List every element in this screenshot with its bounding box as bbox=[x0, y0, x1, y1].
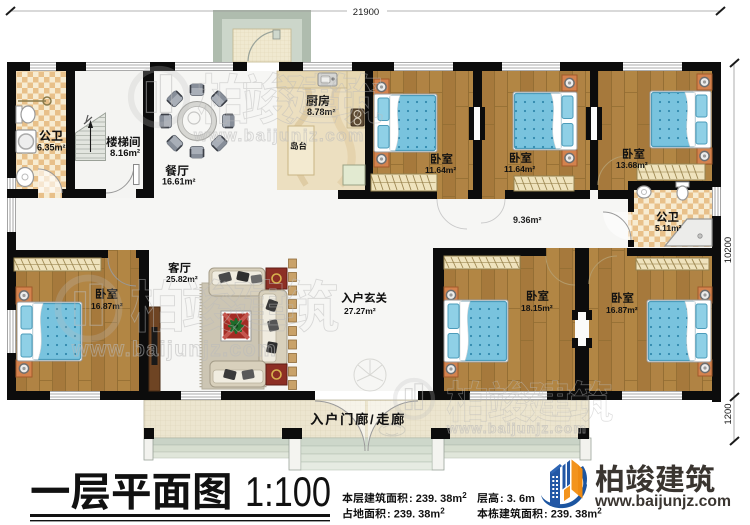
svg-text:: 239. 38m2: : 239. 38m2 bbox=[387, 507, 445, 521]
svg-text:11.64m²: 11.64m² bbox=[504, 164, 535, 174]
svg-text:16.61m²: 16.61m² bbox=[162, 177, 196, 187]
svg-text:: 239. 38m2: : 239. 38m2 bbox=[544, 507, 602, 521]
svg-text:8.16m²: 8.16m² bbox=[110, 148, 140, 159]
svg-text:21900: 21900 bbox=[353, 7, 379, 18]
svg-text:www.baijunjz.com: www.baijunjz.com bbox=[71, 338, 277, 361]
svg-text:: 239. 38m2: : 239. 38m2 bbox=[409, 491, 467, 505]
svg-text:16.87m²: 16.87m² bbox=[606, 305, 638, 315]
svg-text:www.baijunjz.com: www.baijunjz.com bbox=[193, 126, 365, 145]
svg-text:9.36m²: 9.36m² bbox=[513, 215, 542, 225]
svg-text:27.27m²: 27.27m² bbox=[344, 306, 376, 316]
svg-text:: 3. 6m: : 3. 6m bbox=[500, 493, 535, 505]
svg-text:11.64m²: 11.64m² bbox=[425, 165, 456, 175]
svg-text:/: / bbox=[370, 412, 374, 427]
svg-text:1:100: 1:100 bbox=[245, 468, 331, 515]
svg-text:5.11m²: 5.11m² bbox=[655, 223, 682, 233]
svg-text:www.baijunjz.com: www.baijunjz.com bbox=[446, 420, 587, 436]
svg-text:13.68m²: 13.68m² bbox=[616, 160, 648, 170]
svg-text:1200: 1200 bbox=[723, 403, 734, 424]
svg-text:18.15m²: 18.15m² bbox=[521, 303, 553, 313]
svg-text:10200: 10200 bbox=[723, 237, 734, 263]
svg-text:www.baijunjz.com: www.baijunjz.com bbox=[594, 493, 731, 510]
svg-text:6.35m²: 6.35m² bbox=[37, 143, 66, 153]
